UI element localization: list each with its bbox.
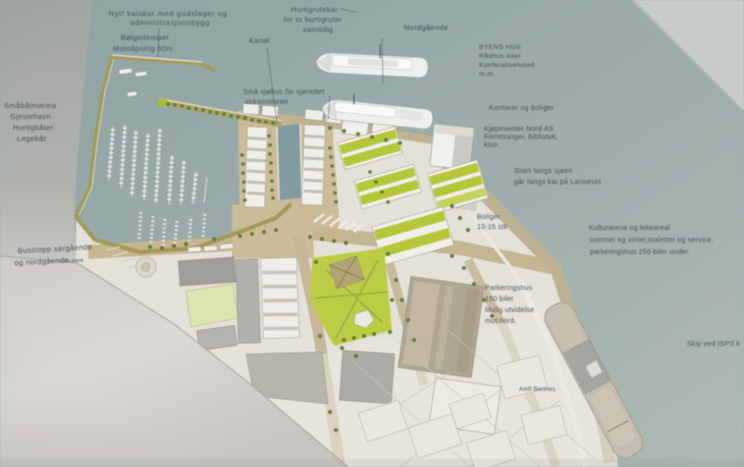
svg-text:Amfi Bertnes: Amfi Bertnes bbox=[519, 387, 556, 393]
